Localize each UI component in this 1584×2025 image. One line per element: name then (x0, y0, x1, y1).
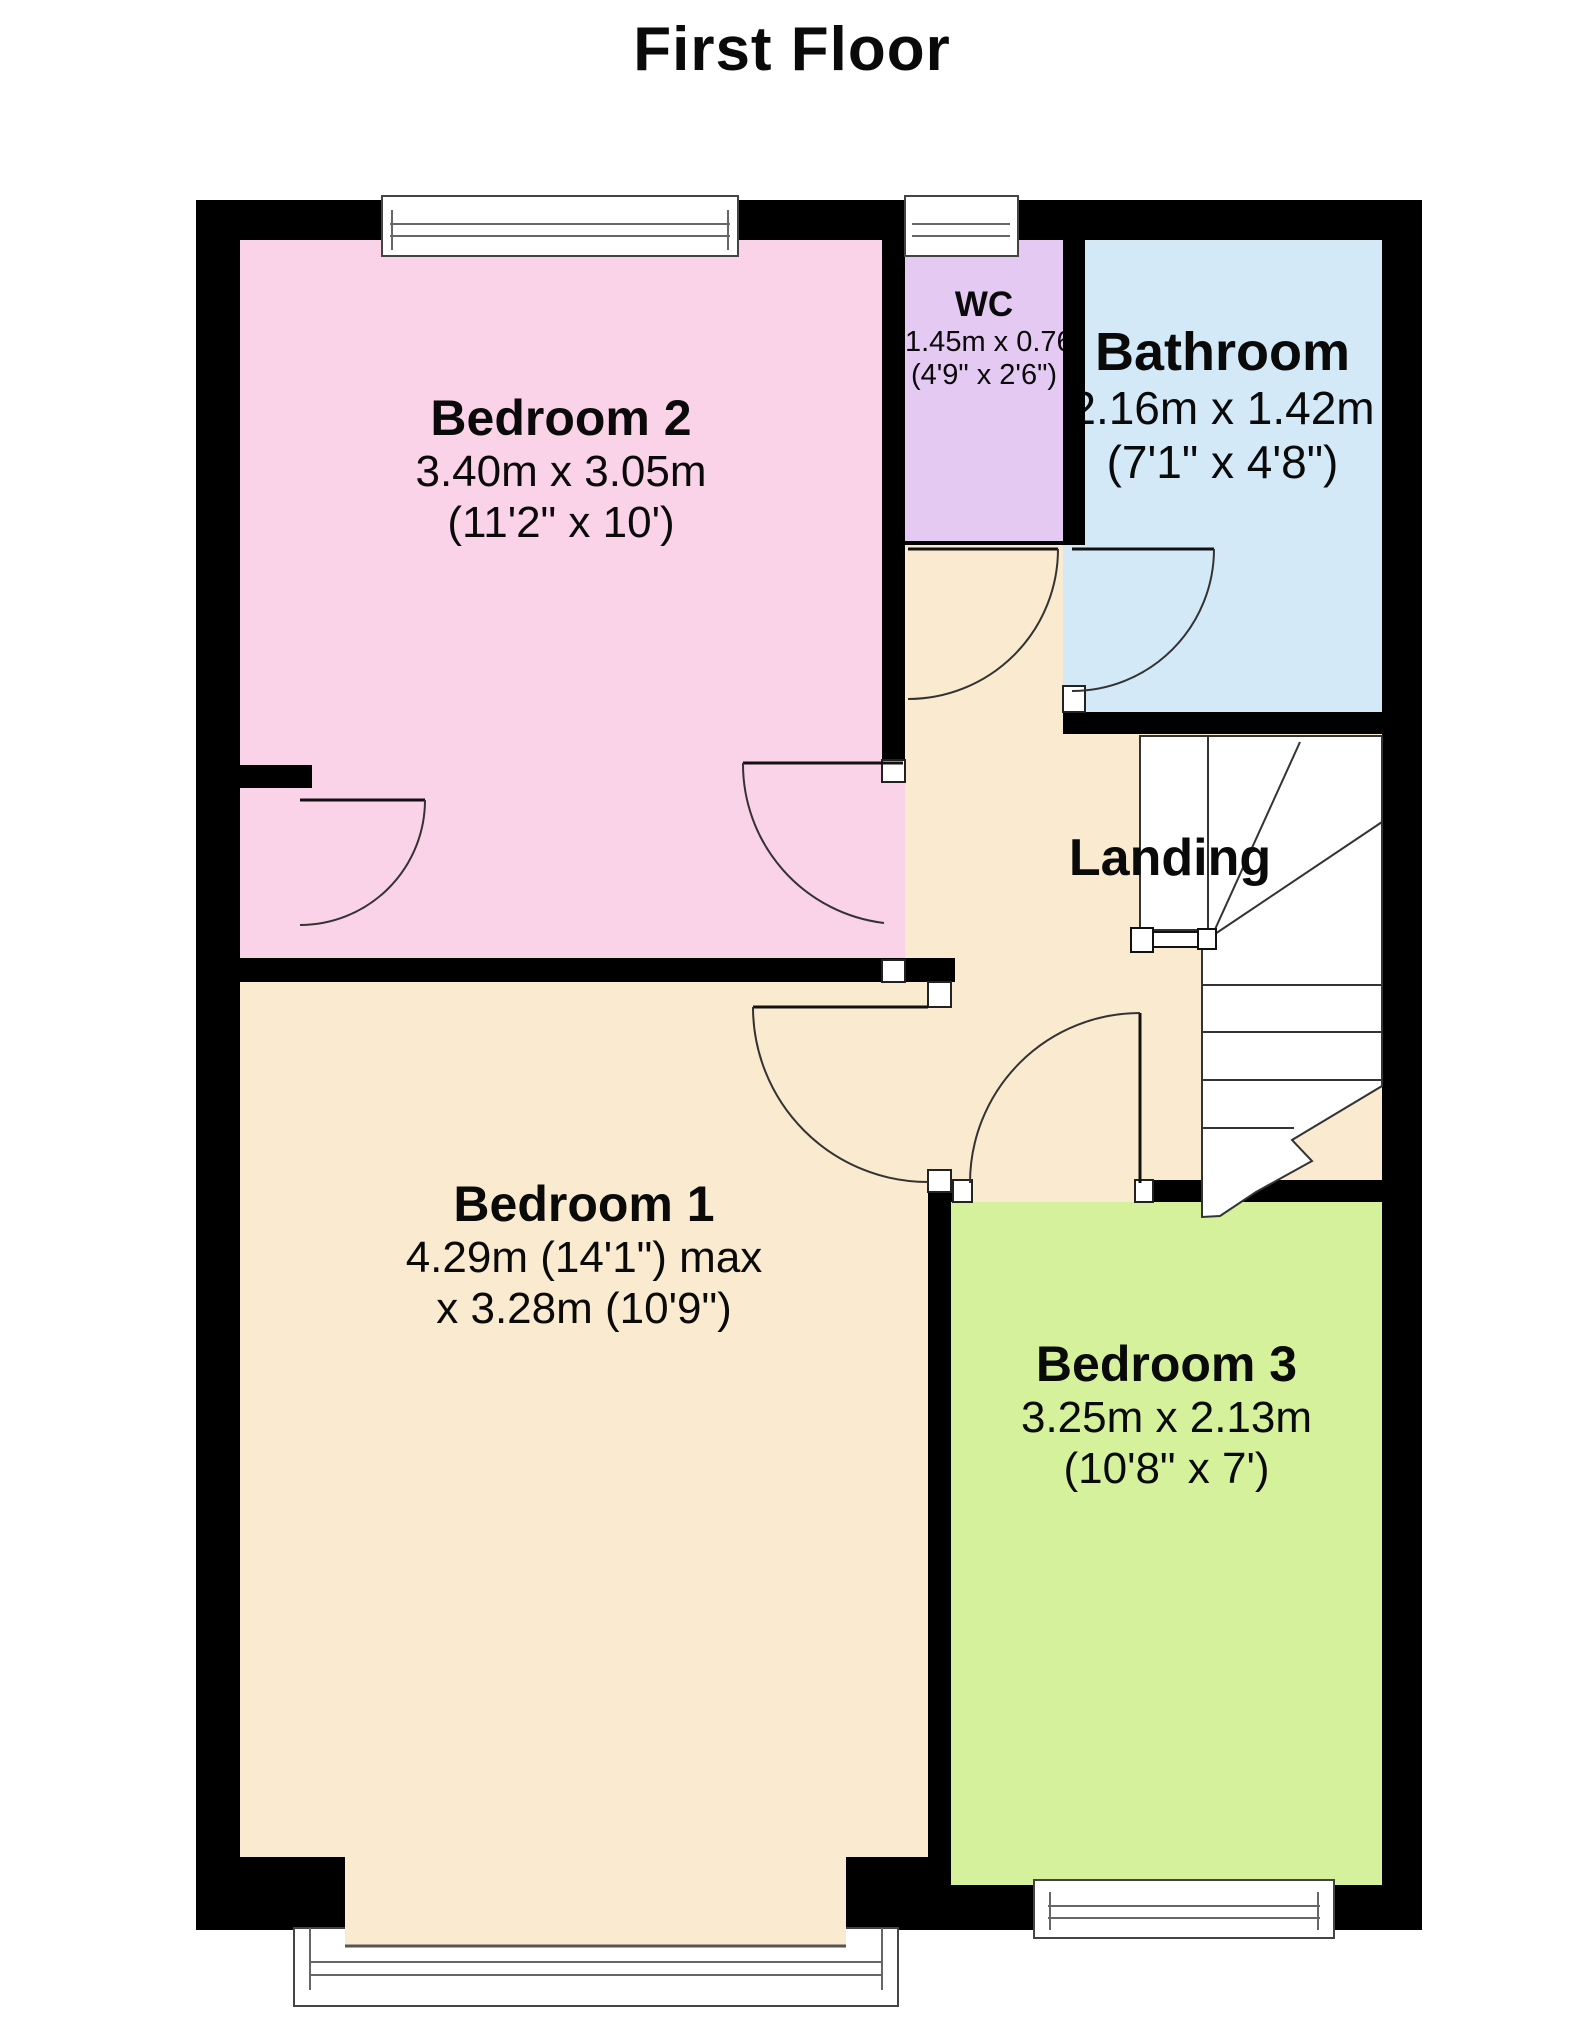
room-dim-metric: 1.45m x 0.76m (905, 326, 1063, 359)
wall-bottom-pier-left (196, 1857, 345, 1930)
wall-top (196, 200, 1422, 240)
page-title: First Floor (0, 14, 1584, 85)
wall-bedroom3-top (1153, 1180, 1382, 1202)
room-dim-imperial: x 3.28m (10'9") (240, 1283, 928, 1334)
floor-plan: First Floor Bedroom 2 3.40m x 3.05m (11'… (0, 0, 1584, 2025)
room-dim-imperial: (7'1" x 4'8") (1063, 436, 1382, 489)
room-dim-metric: 3.25m x 2.13m (951, 1392, 1382, 1443)
room-label: Bathroom (1063, 322, 1382, 382)
room-label: Bedroom 1 (240, 1176, 928, 1232)
wall-bottom-bedroom3 (951, 1885, 1422, 1930)
room-bedroom3: Bedroom 3 3.25m x 2.13m (10'8" x 7') (951, 1202, 1382, 1885)
room-label: Bedroom 3 (951, 1336, 1382, 1392)
wall-left (196, 200, 240, 1930)
room-dim-imperial: (11'2" x 10') (240, 497, 882, 548)
wall-bedroom2-east (882, 240, 905, 760)
wall-bottom-pier-right (846, 1857, 951, 1930)
room-bedroom2: Bedroom 2 3.40m x 3.05m (11'2" x 10') (240, 240, 882, 958)
wall-bedroom1-bedroom3 (928, 1192, 951, 1857)
room-dim-metric: 2.16m x 1.42m (1063, 382, 1382, 435)
wall-bedroom2-bedroom1 (196, 958, 955, 982)
room-dim-imperial: (4'9" x 2'6") (905, 359, 1063, 392)
room-dim-imperial: (10'8" x 7') (951, 1443, 1382, 1494)
room-label: WC (905, 284, 1063, 326)
doorway-bedroom2 (882, 782, 905, 960)
room-wc: WC 1.45m x 0.76m (4'9" x 2'6") (905, 240, 1063, 543)
room-dim-metric: 4.29m (14'1") max (240, 1232, 928, 1283)
wall-bathroom-south (1063, 712, 1382, 734)
room-label: Bedroom 2 (240, 390, 882, 446)
wall-wc-bathroom (1063, 240, 1085, 545)
wall-right (1382, 200, 1422, 1885)
room-landing-label: Landing (1000, 828, 1340, 888)
room-bathroom: Bathroom 2.16m x 1.42m (7'1" x 4'8") (1063, 240, 1382, 712)
room-dim-metric: 3.40m x 3.05m (240, 446, 882, 497)
wall-wc-sill (905, 541, 1063, 545)
wall-alcove-stub (240, 765, 312, 788)
room-bedroom1: Bedroom 1 4.29m (14'1") max x 3.28m (10'… (240, 982, 928, 1885)
wall-bedroom3-top-stub (951, 1180, 955, 1202)
